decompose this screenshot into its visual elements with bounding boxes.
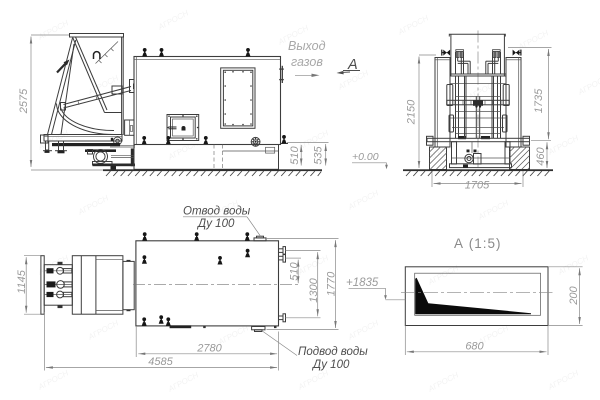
svg-text:200: 200 <box>568 285 580 305</box>
svg-text:+0.00: +0.00 <box>352 151 379 163</box>
svg-text:1705: 1705 <box>465 180 490 192</box>
svg-text:+1835: +1835 <box>346 277 379 289</box>
svg-text:4585: 4585 <box>148 356 173 368</box>
svg-text:510: 510 <box>289 145 301 164</box>
svg-text:1300: 1300 <box>308 277 320 302</box>
svg-text:Выход: Выход <box>288 39 326 53</box>
svg-text:Отвод воды: Отвод воды <box>183 206 251 218</box>
svg-text:535: 535 <box>313 145 325 164</box>
svg-text:2575: 2575 <box>18 88 30 114</box>
svg-text:1735: 1735 <box>533 88 545 113</box>
svg-text:Ду 100: Ду 100 <box>196 218 235 230</box>
svg-text:А (1:5): А (1:5) <box>454 236 502 251</box>
svg-text:1770: 1770 <box>326 271 338 296</box>
svg-text:510: 510 <box>288 261 300 280</box>
svg-text:1145: 1145 <box>16 269 28 294</box>
svg-text:680: 680 <box>465 341 484 353</box>
svg-text:Ду 100: Ду 100 <box>311 359 350 371</box>
svg-text:2780: 2780 <box>196 343 222 355</box>
svg-text:460: 460 <box>535 146 547 165</box>
svg-text:газов: газов <box>291 55 323 69</box>
svg-text:Подвод воды: Подвод воды <box>298 346 368 358</box>
svg-text:2150: 2150 <box>406 99 418 125</box>
